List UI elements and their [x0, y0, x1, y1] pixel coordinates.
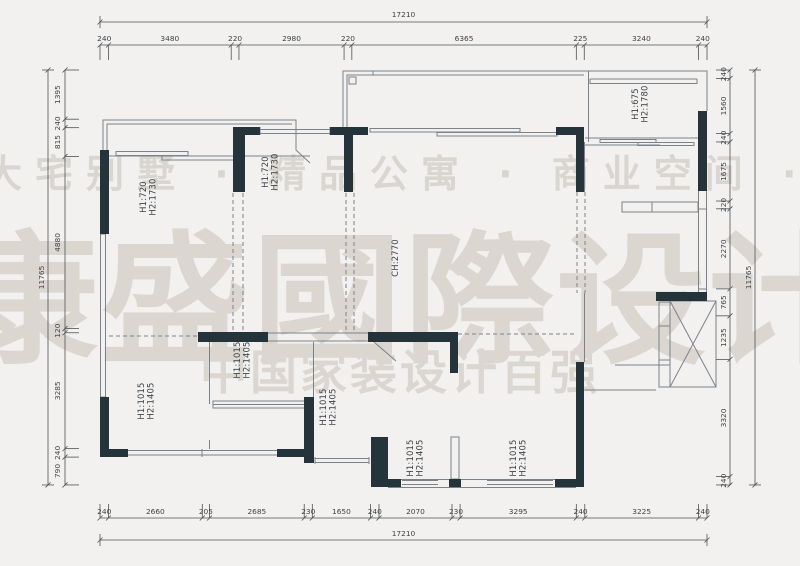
floor-plan-canvas: 2403480220298022063652253240240172102402… — [0, 0, 800, 566]
dimension-label: 815 — [53, 135, 62, 149]
dimension-label: 240 — [368, 507, 382, 516]
dimension-label: 240 — [53, 116, 62, 130]
dimension-label: 230 — [301, 507, 315, 516]
dimension-label: 2980 — [282, 34, 301, 43]
dimension-label: 3295 — [509, 507, 528, 516]
dimension-label: 1650 — [332, 507, 351, 516]
dimension-label: 230 — [449, 507, 463, 516]
dimension-label: 17210 — [392, 10, 416, 19]
dimension-label: 4880 — [53, 233, 62, 252]
dimension-label: 240 — [696, 34, 710, 43]
dimension-lines: 2403480220298022063652253240240172102402… — [37, 10, 761, 546]
dimension-label: 3225 — [632, 507, 651, 516]
dimension-label: 790 — [53, 464, 62, 478]
room-label: H2:1730 — [270, 153, 280, 190]
room-label: H2:1405 — [518, 439, 528, 476]
room-label: H1:720 — [138, 181, 148, 213]
room-label: H2:1780 — [640, 85, 650, 122]
floor-plan-page: 大宅别墅 · 精品公寓 · 商业空间 · 设计装 康盛國際设计 中国家装设计百强 — [0, 0, 800, 566]
dimension-label: 240 — [696, 507, 710, 516]
dimension-label: 11765 — [37, 265, 46, 289]
dashed-lines — [109, 192, 585, 336]
dimension-label: 240 — [719, 67, 728, 81]
room-label: H2:1405 — [146, 382, 156, 419]
dimension-label: 3285 — [53, 381, 62, 400]
room-label: H1:1015 — [232, 341, 242, 378]
room-label: H1:675 — [630, 88, 640, 120]
room-label: H1:1015 — [508, 439, 518, 476]
solid-walls — [100, 111, 707, 487]
dimension-label: 17210 — [392, 529, 416, 538]
dimension-label: 1560 — [719, 96, 728, 115]
dimension-label: 6365 — [455, 34, 474, 43]
dimension-label: 765 — [719, 295, 728, 309]
dimension-label: 11765 — [744, 265, 753, 289]
dimension-label: 2685 — [247, 507, 266, 516]
room-label: H2:1730 — [148, 178, 158, 215]
room-label: CH:2770 — [390, 239, 400, 277]
dimension-label: 2270 — [719, 239, 728, 258]
dimension-label: 205 — [199, 507, 213, 516]
dimension-label: 240 — [719, 130, 728, 144]
room-label: H1:1015 — [318, 388, 328, 425]
dimension-label: 225 — [573, 34, 587, 43]
dimension-label: 220 — [341, 34, 355, 43]
dimension-label: 1395 — [53, 85, 62, 104]
room-label: H2:1405 — [415, 439, 425, 476]
dimension-label: 220 — [228, 34, 242, 43]
dimension-label: 3480 — [160, 34, 179, 43]
dimension-label: 3240 — [632, 34, 651, 43]
dimension-label: 240 — [574, 507, 588, 516]
room-label: H1:720 — [260, 156, 270, 188]
dimension-label: 1235 — [719, 328, 728, 347]
room-label: H2:1405 — [242, 341, 252, 378]
room-labels: H1:720H2:1730H1:720H2:1730H1:675H2:1780C… — [136, 85, 650, 476]
dimension-label: 3320 — [719, 408, 728, 427]
dimension-label: 240 — [97, 507, 111, 516]
dimension-label: 2070 — [406, 507, 425, 516]
room-label: H2:1405 — [328, 388, 338, 425]
dimension-label: 240 — [97, 34, 111, 43]
room-label: H1:1015 — [136, 382, 146, 419]
dimension-label: 1675 — [719, 162, 728, 181]
dimension-label: 120 — [53, 323, 62, 337]
dimension-label: 240 — [53, 446, 62, 460]
dimension-label: 240 — [719, 473, 728, 487]
room-label: H1:1015 — [405, 439, 415, 476]
dimension-label: 220 — [719, 198, 728, 212]
thin-walls — [100, 71, 716, 488]
dimension-label: 2660 — [146, 507, 165, 516]
